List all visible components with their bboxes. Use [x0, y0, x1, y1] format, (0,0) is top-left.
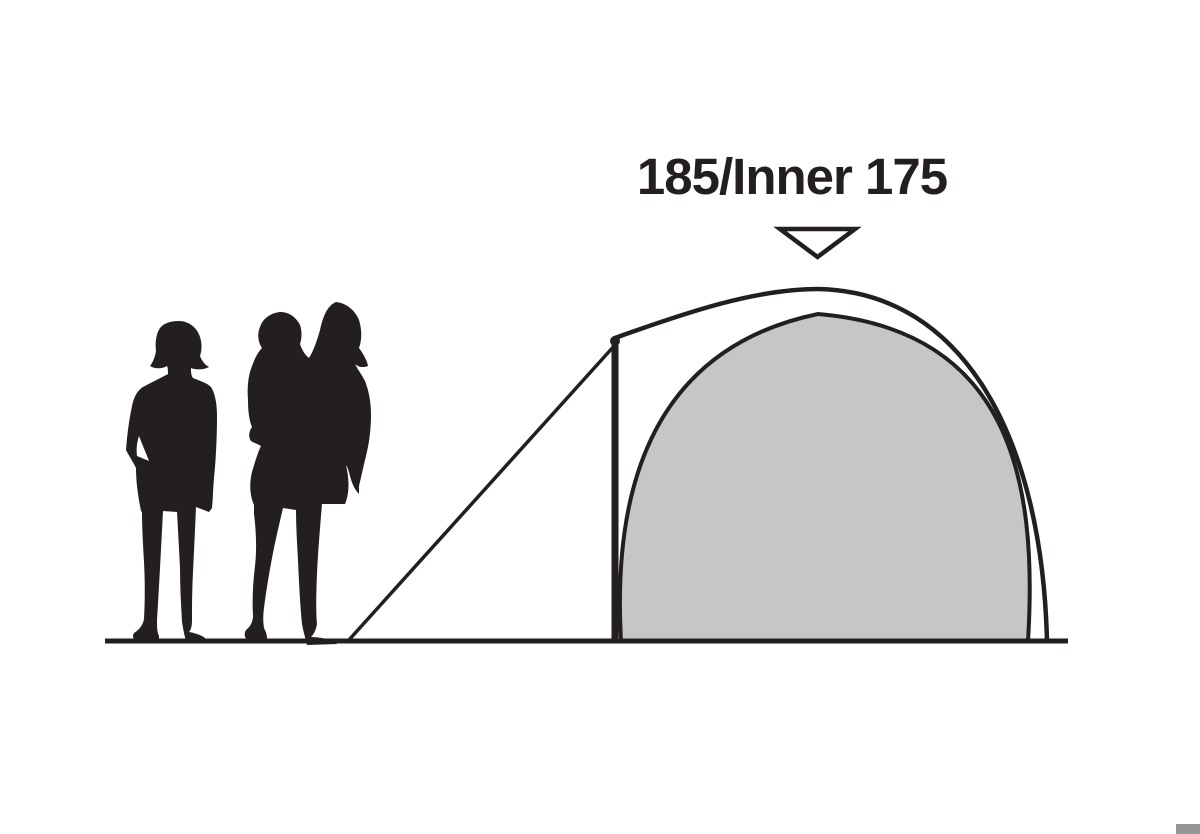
down-triangle-marker-icon [780, 229, 855, 257]
guy-line [348, 345, 615, 641]
adult-silhouette [126, 321, 217, 641]
tent-dimension-diagram: 185/Inner 175 [0, 0, 1200, 834]
tent-pole [612, 338, 619, 641]
adult-carrying-child-silhouette [245, 302, 371, 645]
diagram-canvas [0, 0, 1200, 834]
corner-crop-mark [1176, 824, 1200, 834]
tent-pole-cap [610, 336, 620, 346]
